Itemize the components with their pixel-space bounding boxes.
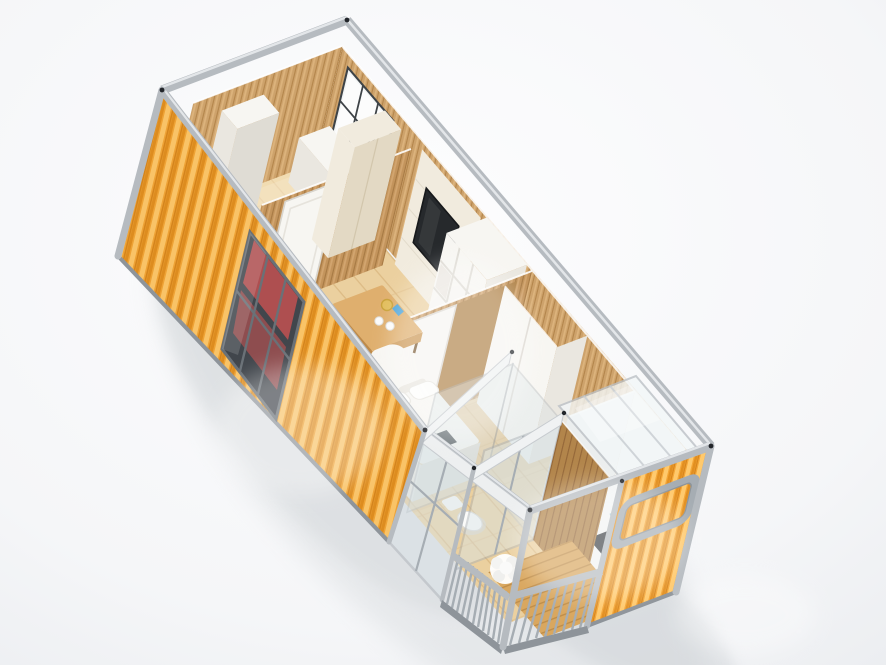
plate-1 — [375, 317, 383, 325]
fruit-bowl — [382, 300, 393, 311]
container-house-3d-render — [0, 0, 886, 665]
container-house-figure — [0, 0, 886, 665]
